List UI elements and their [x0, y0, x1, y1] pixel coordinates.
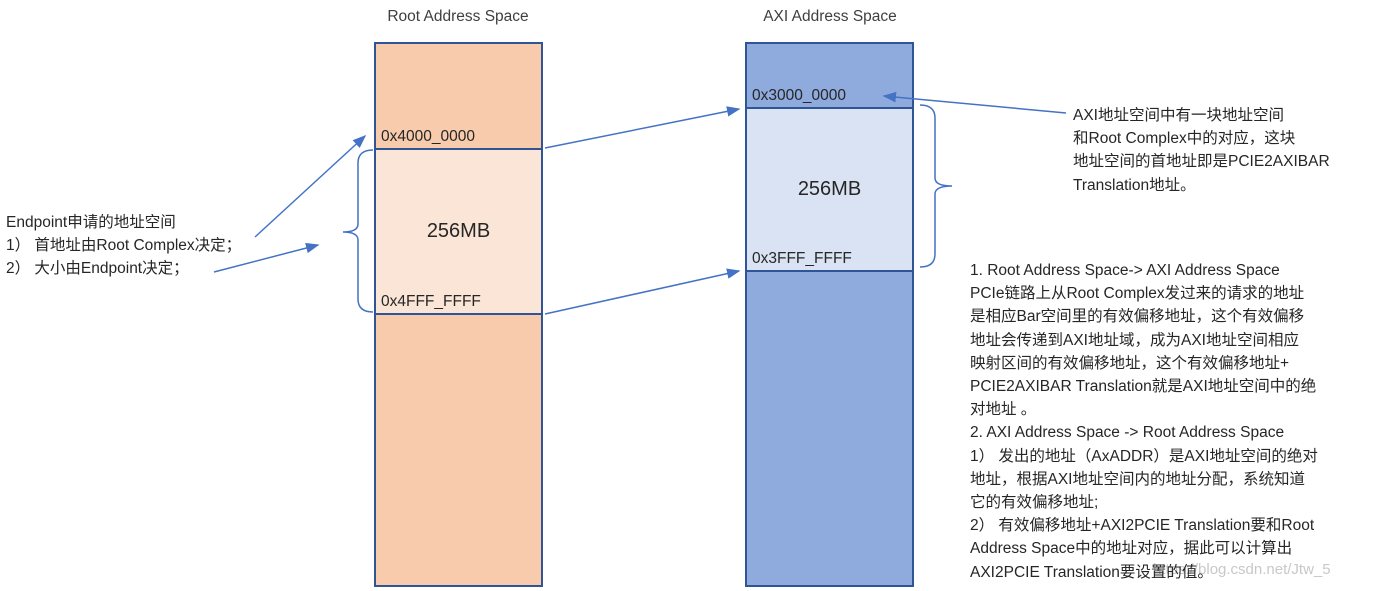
- axi-mapped-region: 256MB 0x3FFF_FFFF: [747, 107, 912, 270]
- root-upper-segment: 0x4000_0000: [376, 44, 541, 148]
- note-line: Translation地址。: [1073, 174, 1330, 197]
- note-line: 2） 大小由Endpoint决定；: [6, 257, 241, 280]
- axi-address-space-title: AXI Address Space: [710, 8, 950, 26]
- note-line: 2） 有效偏移地址+AXI2PCIE Translation要和Root: [970, 514, 1318, 537]
- note-line: Address Space中的地址对应，据此可以计算出: [970, 537, 1318, 560]
- note-line: Endpoint申请的地址空间: [6, 211, 241, 234]
- axi-lower-segment: [747, 270, 912, 585]
- endpoint-note: Endpoint申请的地址空间1） 首地址由Root Complex决定；2） …: [6, 211, 241, 281]
- note-line: 映射区间的有效偏移地址，这个有效偏移地址+: [970, 352, 1318, 375]
- note-line: 2. AXI Address Space -> Root Address Spa…: [970, 421, 1318, 444]
- note-line: 1. Root Address Space-> AXI Address Spac…: [970, 259, 1318, 282]
- note-line: AXI地址空间中有一块地址空间: [1073, 104, 1330, 127]
- root-region-end-address: 0x4FFF_FFFF: [381, 293, 481, 311]
- root-region-start-address: 0x4000_0000: [381, 128, 475, 146]
- axi-region-start-address: 0x3000_0000: [752, 87, 846, 105]
- note-line: 地址，根据AXI地址空间内的地址分配，系统知道: [970, 468, 1318, 491]
- pcie2axibar-note: AXI地址空间中有一块地址空间和Root Complex中的对应，这块地址空间的…: [1073, 104, 1330, 197]
- note-line: PCIE2AXIBAR Translation就是AXI地址空间中的绝: [970, 375, 1318, 398]
- note-line: 是相应Bar空间里的有效偏移地址，这个有效偏移: [970, 305, 1318, 328]
- note-line: 对地址 。: [970, 398, 1318, 421]
- arrow-note-to-root-start-icon: [255, 136, 365, 237]
- note-line: 它的有效偏移地址;: [970, 491, 1318, 514]
- note-line: 1） 发出的地址（AxADDR）是AXI地址空间的绝对: [970, 445, 1318, 468]
- root-region-size-label: 256MB: [427, 220, 490, 243]
- note-line: 和Root Complex中的对应，这块: [1073, 127, 1330, 150]
- translation-explanation-note: 1. Root Address Space-> AXI Address Spac…: [970, 259, 1318, 584]
- address-translation-diagram: Root Address Space AXI Address Space 0x4…: [0, 0, 1391, 591]
- root-address-space-column: 0x4000_0000 256MB 0x4FFF_FFFF: [374, 42, 543, 587]
- left-brace-icon: [343, 150, 373, 312]
- arrow-root-start-to-axi-icon: [545, 109, 739, 148]
- root-lower-segment: [376, 313, 541, 585]
- axi-upper-segment: 0x3000_0000: [747, 44, 912, 107]
- right-brace-icon: [920, 105, 952, 267]
- root-address-space-title: Root Address Space: [338, 8, 578, 26]
- root-region-size-wrap: 256MB: [376, 150, 541, 313]
- axi-region-end-address: 0x3FFF_FFFF: [752, 250, 852, 268]
- note-line: AXI2PCIE Translation要设置的值。: [970, 561, 1318, 584]
- note-line: 地址空间的首地址即是PCIE2AXIBAR: [1073, 150, 1330, 173]
- note-line: 1） 首地址由Root Complex决定；: [6, 234, 241, 257]
- note-line: 地址会传递到AXI地址域，成为AXI地址空间相应: [970, 329, 1318, 352]
- axi-region-size-label: 256MB: [798, 178, 861, 201]
- axi-region-size-wrap: 256MB: [747, 109, 912, 270]
- note-line: PCIe链路上从Root Complex发过来的请求的地址: [970, 282, 1318, 305]
- axi-address-space-column: 0x3000_0000 256MB 0x3FFF_FFFF: [745, 42, 914, 587]
- root-mapped-region: 256MB 0x4FFF_FFFF: [376, 148, 541, 313]
- arrow-root-end-to-axi-icon: [545, 271, 739, 314]
